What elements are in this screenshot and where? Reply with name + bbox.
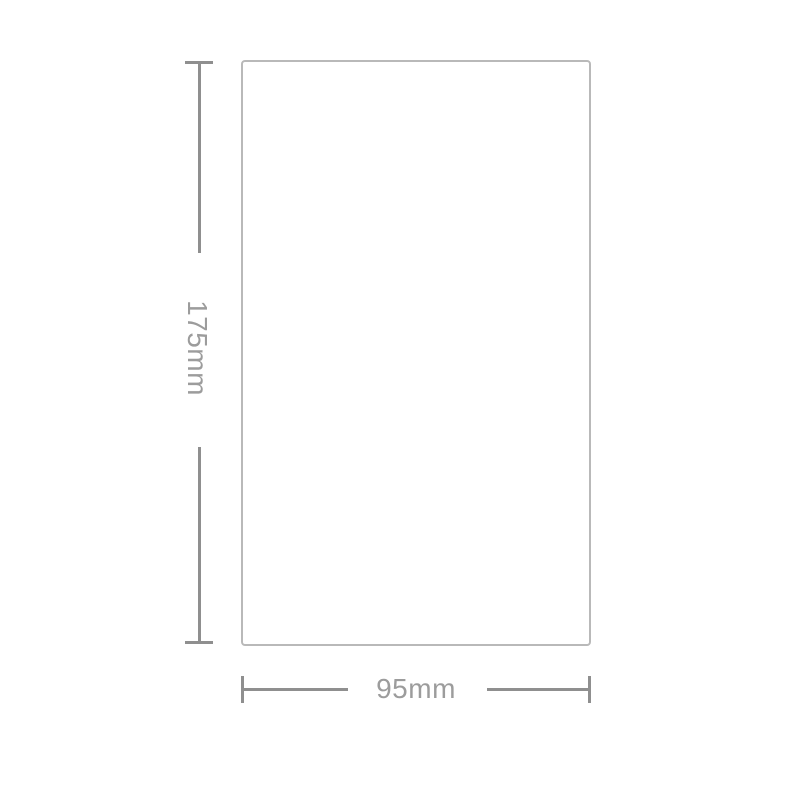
dimension-diagram: 175mm 95mm: [0, 0, 800, 800]
width-dimension-left-segment: [241, 688, 348, 691]
height-dimension-lower-segment: [198, 447, 201, 641]
height-dimension-label: 175mm: [181, 300, 213, 396]
width-dimension-right-segment: [487, 688, 590, 691]
width-dimension-label: 95mm: [376, 673, 456, 705]
height-dimension-upper-segment: [198, 61, 201, 253]
width-dimension-right-cap: [588, 676, 591, 703]
product-outline-rect: [241, 60, 591, 646]
height-dimension-bottom-cap: [185, 641, 213, 644]
